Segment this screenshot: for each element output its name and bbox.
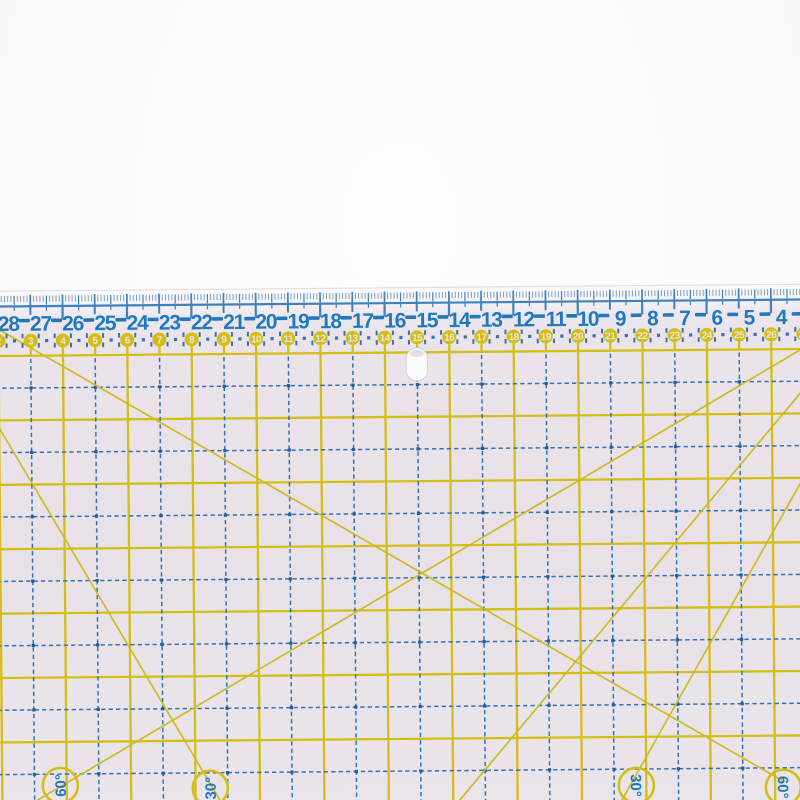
- grid-dot: [33, 773, 36, 776]
- angle-label: 30°: [203, 777, 220, 800]
- product-photo: 2827262524232221201918171615141312111098…: [0, 0, 800, 800]
- number-dash: [115, 318, 126, 322]
- gap-dash: [376, 340, 378, 345]
- gap-dash: [392, 340, 394, 345]
- gap-dash: [279, 332, 281, 337]
- number-dash: [437, 315, 448, 319]
- angle-label: 60°: [774, 776, 791, 799]
- gap-dash: [166, 333, 168, 338]
- gap-dash: [376, 331, 378, 336]
- gap-dash: [585, 338, 587, 343]
- gap-dash: [746, 327, 748, 332]
- gap-dash: [666, 338, 668, 343]
- grid-dot: [225, 642, 228, 645]
- gap-dash: [6, 343, 8, 348]
- gap-dot: [110, 338, 113, 341]
- grid-dot: [94, 450, 97, 453]
- gap-dot: [625, 334, 628, 337]
- grid-dot: [741, 767, 744, 770]
- gap-dash: [86, 333, 88, 338]
- quilting-ruler: 2827262524232221201918171615141312111098…: [0, 0, 800, 800]
- grid-dot: [611, 574, 614, 577]
- grid-dot: [289, 642, 292, 645]
- grid-dot: [223, 385, 226, 388]
- gap-dash: [263, 332, 265, 337]
- gap-dash: [650, 338, 652, 343]
- blue-scale-number: 22: [191, 311, 213, 334]
- gap-dash: [247, 341, 249, 346]
- number-dash: [19, 319, 30, 323]
- blue-scale-number: 16: [384, 309, 406, 332]
- gap-dash: [5, 334, 7, 339]
- grid-dot: [545, 382, 548, 385]
- grid-dot: [225, 707, 228, 710]
- grid-dot: [97, 772, 100, 775]
- gap-dash: [182, 332, 184, 337]
- gap-dot: [303, 337, 306, 340]
- gap-dash: [601, 338, 603, 343]
- grid-dot: [226, 771, 229, 774]
- grid-dot: [675, 509, 678, 512]
- gap-dot: [13, 339, 16, 342]
- gap-dash: [343, 331, 345, 336]
- grid-dot: [416, 447, 419, 450]
- blue-scale-number: 15: [416, 309, 439, 332]
- grid-dot: [674, 445, 677, 448]
- blue-scale-number: 17: [352, 310, 374, 333]
- yellow-scale-number: 20: [573, 332, 584, 343]
- gap-dash: [778, 337, 780, 342]
- gap-dash: [504, 330, 506, 335]
- grid-dot: [545, 446, 548, 449]
- number-dash: [212, 317, 223, 321]
- gap-dash: [521, 339, 523, 344]
- grid-dot: [30, 451, 33, 454]
- grid-dot: [290, 770, 293, 773]
- gap-dash: [456, 330, 458, 335]
- number-dash: [598, 314, 609, 318]
- grid-dot: [418, 641, 421, 644]
- gap-dash: [440, 330, 442, 335]
- blue-scale-number: 25: [94, 312, 117, 335]
- gap-dash: [38, 334, 40, 339]
- gap-dot: [142, 338, 145, 341]
- grid-dot: [481, 447, 484, 450]
- grid-dot: [677, 767, 680, 770]
- gap-dot: [174, 338, 177, 341]
- gap-dash: [505, 339, 507, 344]
- gap-dash: [279, 341, 281, 346]
- gap-dash: [311, 341, 313, 346]
- number-dash: [502, 315, 513, 319]
- gap-dash: [698, 328, 700, 333]
- gap-dash: [70, 333, 72, 338]
- blue-scale-number: 8: [647, 307, 659, 330]
- grid-dot: [354, 641, 357, 644]
- blue-scale-number: 11: [546, 308, 568, 331]
- gap-dash: [489, 339, 491, 344]
- grid-dot: [546, 511, 549, 514]
- grid-dot: [738, 445, 741, 448]
- gap-dash: [215, 332, 217, 337]
- grid-dot: [738, 380, 741, 383]
- grid-dot: [739, 509, 742, 512]
- gap-dash: [247, 332, 249, 337]
- number-dash: [566, 314, 577, 318]
- gap-dash: [311, 331, 313, 336]
- gap-dot: [560, 334, 563, 337]
- gap-dash: [199, 342, 201, 347]
- grid-dot: [95, 515, 98, 518]
- yellow-scale-number: 16: [444, 333, 455, 344]
- grid-dot: [29, 386, 32, 389]
- gap-dot: [335, 336, 338, 339]
- grid-dot: [96, 579, 99, 582]
- blue-scale-number: 12: [513, 308, 535, 331]
- blue-scale-number: 9: [615, 308, 626, 331]
- gap-dot: [77, 339, 80, 342]
- gap-dash: [569, 338, 571, 343]
- number-dash: [341, 316, 352, 320]
- blue-scale-number: 18: [320, 310, 343, 333]
- gap-dash: [456, 339, 458, 344]
- blue-scale-number: 13: [481, 309, 503, 332]
- grid-dot: [160, 643, 163, 646]
- blue-scale-number: 28: [0, 313, 20, 336]
- grid-dot: [610, 510, 613, 513]
- gap-dot: [689, 333, 692, 336]
- gap-dash: [344, 340, 346, 345]
- gap-dot: [721, 333, 724, 336]
- number-dash: [180, 317, 191, 321]
- number-dash: [759, 312, 770, 316]
- blue-scale-number: 27: [30, 313, 52, 336]
- gap-dash: [553, 339, 555, 344]
- yellow-scale-number: 12: [315, 334, 326, 345]
- grid-dot: [355, 770, 358, 773]
- grid-dot: [223, 449, 226, 452]
- gap-dash: [472, 330, 474, 335]
- gap-dash: [730, 328, 732, 333]
- grid-dot: [288, 448, 291, 451]
- grid-dot: [224, 513, 227, 516]
- blue-scale-number: 5: [744, 306, 756, 329]
- number-dash: [83, 318, 94, 322]
- number-dash: [792, 312, 800, 316]
- gap-dot: [592, 334, 595, 337]
- gap-dot: [399, 336, 402, 339]
- grid-dot: [31, 515, 34, 518]
- yellow-scale-number: 23: [670, 331, 681, 342]
- gap-dash: [215, 342, 217, 347]
- number-dash: [51, 318, 62, 322]
- gap-dash: [601, 329, 603, 334]
- gap-dash: [569, 329, 571, 334]
- gap-dash: [553, 329, 555, 334]
- grid-dot: [419, 705, 422, 708]
- yellow-scale-number: 17: [476, 332, 487, 343]
- blue-scale-number: 14: [448, 309, 471, 332]
- yellow-scale-number: 21: [605, 331, 616, 342]
- number-dash: [631, 313, 642, 317]
- gap-dot: [271, 337, 274, 340]
- gap-dot: [238, 337, 241, 340]
- gap-dash: [102, 342, 104, 347]
- gap-dash: [730, 337, 732, 342]
- gap-dash: [617, 338, 619, 343]
- grid-dot: [611, 639, 614, 642]
- gap-dash: [537, 339, 539, 344]
- gap-dash: [746, 337, 748, 342]
- yellow-scale-number: 25: [734, 330, 745, 341]
- gap-dash: [392, 331, 394, 336]
- gap-dash: [167, 342, 169, 347]
- gap-dash: [134, 342, 136, 347]
- blue-scale-number: 4: [776, 306, 788, 329]
- gap-dash: [698, 337, 700, 342]
- blue-scale-number: 10: [577, 308, 599, 331]
- grid-dot: [158, 385, 161, 388]
- number-dash: [309, 316, 320, 320]
- grid-dot: [224, 578, 227, 581]
- grid-dot: [159, 514, 162, 517]
- number-dash: [244, 317, 255, 321]
- grid-dot: [676, 638, 679, 641]
- number-dash: [534, 314, 545, 318]
- gap-dash: [521, 329, 523, 334]
- grid-dot: [483, 704, 486, 707]
- gap-dash: [263, 341, 265, 346]
- grid-dot: [548, 768, 551, 771]
- gap-dot: [528, 335, 531, 338]
- gap-dash: [328, 341, 330, 346]
- grid-dot: [354, 705, 357, 708]
- blue-scale-number: 19: [287, 310, 309, 333]
- yellow-scale-number: 19: [541, 332, 552, 343]
- yellow-scale-number: 15: [412, 333, 423, 344]
- grid-dot: [610, 446, 613, 449]
- grid-dot: [482, 576, 485, 579]
- grid-dot: [31, 580, 34, 583]
- grid-dot: [673, 381, 676, 384]
- grid-dot: [96, 643, 99, 646]
- gap-dash: [360, 331, 362, 336]
- blue-scale-number: 6: [711, 307, 722, 330]
- gap-dash: [22, 343, 24, 348]
- grid-dot: [290, 706, 293, 709]
- gap-dash: [118, 333, 120, 338]
- blue-scale-number: 24: [126, 312, 149, 335]
- gap-dot: [786, 333, 789, 336]
- gap-dot: [496, 335, 499, 338]
- gap-dash: [537, 329, 539, 334]
- gap-dash: [295, 331, 297, 336]
- gap-dash: [183, 342, 185, 347]
- gap-dash: [118, 342, 120, 347]
- gap-dash: [682, 328, 684, 333]
- hanging-hole: [406, 348, 428, 381]
- gap-dash: [472, 339, 474, 344]
- gap-dash: [408, 330, 410, 335]
- grid-dot: [32, 708, 35, 711]
- grid-dot: [612, 703, 615, 706]
- gap-dash: [150, 342, 152, 347]
- grid-dot: [287, 384, 290, 387]
- yellow-scale-number: 10: [251, 334, 262, 345]
- grid-dot: [547, 639, 550, 642]
- gap-dash: [762, 327, 764, 332]
- grid-dot: [482, 640, 485, 643]
- gap-dash: [54, 343, 56, 348]
- gap-dash: [38, 343, 40, 348]
- yellow-scale-number: 13: [348, 333, 359, 344]
- yellow-scale-number: 24: [702, 330, 713, 341]
- gap-dash: [633, 338, 635, 343]
- grid-dot: [162, 772, 165, 775]
- gap-dot: [431, 336, 434, 339]
- yellow-scale-number: 22: [637, 331, 648, 342]
- yellow-scale-number: 14: [380, 333, 391, 344]
- grid-dot: [609, 381, 612, 384]
- gap-dash: [682, 337, 684, 342]
- gap-dash: [327, 331, 329, 336]
- gap-dash: [649, 328, 651, 333]
- number-dash: [470, 315, 481, 319]
- gap-dash: [360, 340, 362, 345]
- angle-label: 30°: [627, 774, 644, 797]
- yellow-scale-number: 26: [766, 330, 777, 341]
- gap-dot: [367, 336, 370, 339]
- gap-dash: [424, 330, 426, 335]
- angle-label: 60°: [53, 774, 70, 797]
- grid-dot: [160, 578, 163, 581]
- gap-dash: [199, 332, 201, 337]
- grid-dot: [353, 577, 356, 580]
- gap-dash: [762, 337, 764, 342]
- grid-dot: [416, 383, 419, 386]
- gap-dot: [753, 333, 756, 336]
- grid-dot: [351, 384, 354, 387]
- gap-dash: [231, 341, 233, 346]
- number-dash: [373, 316, 384, 320]
- gap-dot: [464, 335, 467, 338]
- grid-dot: [546, 575, 549, 578]
- grid-dot: [289, 577, 292, 580]
- number-dash: [663, 313, 674, 317]
- gap-dot: [206, 338, 209, 341]
- gap-dash: [778, 327, 780, 332]
- blue-scale-number: 7: [679, 307, 690, 330]
- gap-dash: [585, 329, 587, 334]
- grid-dot: [481, 511, 484, 514]
- gap-dash: [794, 336, 796, 341]
- gap-dash: [633, 328, 635, 333]
- yellow-scale-number: 11: [283, 334, 294, 345]
- gap-dash: [295, 341, 297, 346]
- gap-dash: [665, 328, 667, 333]
- grid-dot: [288, 513, 291, 516]
- grid-dot: [32, 644, 35, 647]
- grid-dot: [675, 574, 678, 577]
- grid-dot: [353, 512, 356, 515]
- gap-dash: [54, 334, 56, 339]
- number-dash: [276, 316, 287, 320]
- number-dash: [148, 318, 159, 322]
- gap-dash: [488, 330, 490, 335]
- gap-dash: [714, 328, 716, 333]
- yellow-scale-number: 18: [509, 332, 520, 343]
- gap-dash: [134, 333, 136, 338]
- gap-dash: [617, 329, 619, 334]
- grid-dot: [352, 448, 355, 451]
- gap-dash: [408, 340, 410, 345]
- number-dash: [727, 313, 738, 317]
- grid-dot: [741, 702, 744, 705]
- number-dash: [695, 313, 706, 317]
- grid-dot: [419, 769, 422, 772]
- gap-dash: [150, 333, 152, 338]
- grid-dot: [417, 512, 420, 515]
- gap-dash: [231, 332, 233, 337]
- blue-scale-number: 26: [62, 312, 84, 335]
- gap-dot: [45, 339, 48, 342]
- number-dash: [405, 315, 416, 319]
- grid-dot: [480, 382, 483, 385]
- gap-dash: [21, 334, 23, 339]
- grid-dot: [97, 708, 100, 711]
- ruler-tilt-group: 2827262524232221201918171615141312111098…: [0, 284, 800, 800]
- blue-scale-number: 20: [255, 311, 277, 334]
- gap-dash: [86, 343, 88, 348]
- grid-dot: [161, 707, 164, 710]
- blue-scale-number: 21: [223, 311, 246, 334]
- gap-dash: [794, 327, 796, 332]
- grid-dot: [612, 768, 615, 771]
- grid-dot: [740, 638, 743, 641]
- gap-dot: [657, 334, 660, 337]
- blue-scale-number: 23: [159, 311, 181, 334]
- gap-dash: [102, 333, 104, 338]
- gap-dash: [440, 340, 442, 345]
- grid-dot: [417, 576, 420, 579]
- gap-dash: [714, 337, 716, 342]
- grid-dot: [547, 704, 550, 707]
- gap-dash: [70, 343, 72, 348]
- grid-dot: [739, 573, 742, 576]
- gap-dash: [424, 340, 426, 345]
- grid-dot: [159, 450, 162, 453]
